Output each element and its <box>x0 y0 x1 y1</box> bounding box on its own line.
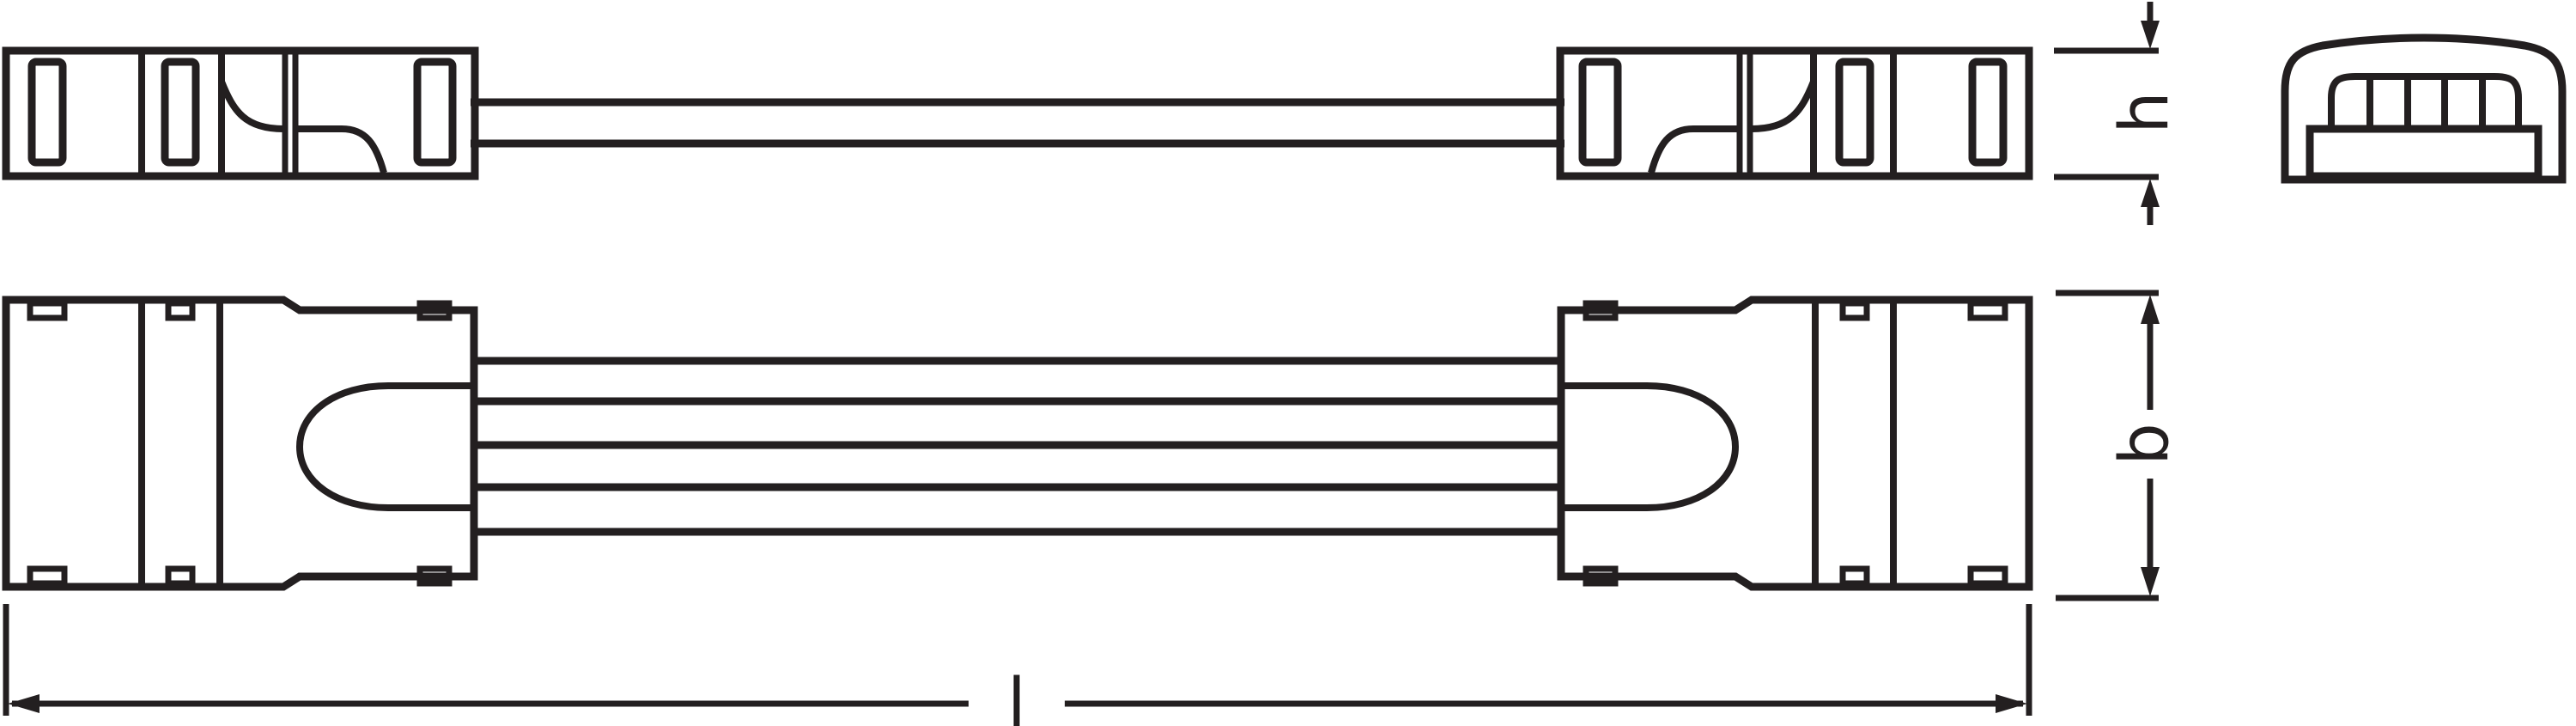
l-dimension-label: l <box>1007 665 1026 726</box>
side-view-left-connector <box>6 51 475 176</box>
ribbon-cable <box>471 361 1564 532</box>
b-dimension-label: b <box>2106 423 2184 466</box>
dimension-b: b <box>2056 293 2184 598</box>
h-arrow-up <box>2141 179 2160 225</box>
l-arrow-right <box>1996 694 2027 713</box>
dimension-l: l <box>6 604 2029 726</box>
connector-dimension-drawing: h <box>0 0 2576 726</box>
h-arrow-down <box>2141 2 2160 49</box>
side-view-right-connector <box>1560 51 2029 176</box>
side-view <box>6 51 2029 176</box>
top-view-right-connector <box>1561 300 2029 587</box>
end-view-base-plate <box>2310 129 2538 176</box>
end-view-contact-comb <box>2331 76 2518 131</box>
h-dimension-label: h <box>2106 91 2184 133</box>
b-arrow-up <box>2141 295 2160 410</box>
b-arrow-down <box>2141 479 2160 596</box>
end-view <box>2285 38 2562 180</box>
technical-drawing-canvas: h <box>0 0 2576 726</box>
cable-profile <box>471 102 1564 143</box>
top-view <box>6 300 2029 587</box>
dimension-h: h <box>2054 2 2184 225</box>
top-view-left-connector <box>6 300 474 587</box>
l-arrow-left <box>8 694 39 713</box>
